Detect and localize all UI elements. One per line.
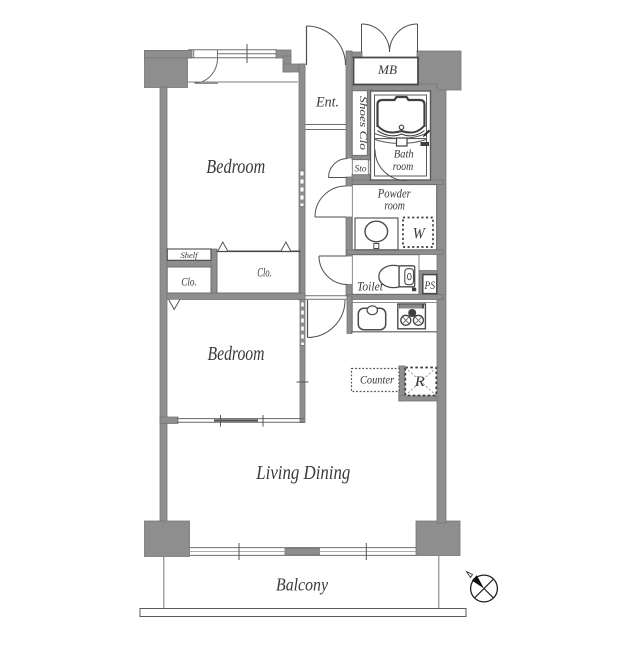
svg-text:room: room: [393, 159, 414, 173]
svg-text:R: R: [414, 374, 425, 390]
svg-text:Sto: Sto: [355, 165, 367, 175]
svg-text:Counter: Counter: [360, 375, 394, 387]
svg-text:Shelf: Shelf: [181, 251, 200, 260]
svg-text:Living Dining: Living Dining: [255, 462, 350, 484]
svg-text:Clo.: Clo.: [257, 266, 272, 280]
svg-text:Ent.: Ent.: [315, 95, 339, 111]
svg-text:Bedroom: Bedroom: [206, 157, 265, 178]
svg-text:Shoes Clo: Shoes Clo: [357, 96, 368, 150]
svg-text:Balcony: Balcony: [276, 575, 328, 595]
svg-text:W: W: [413, 226, 427, 243]
svg-text:Clo.: Clo.: [181, 277, 197, 289]
svg-text:room: room: [384, 198, 405, 213]
svg-text:MB: MB: [377, 63, 397, 77]
svg-text:PS: PS: [424, 278, 435, 292]
svg-text:Bedroom: Bedroom: [208, 344, 265, 365]
